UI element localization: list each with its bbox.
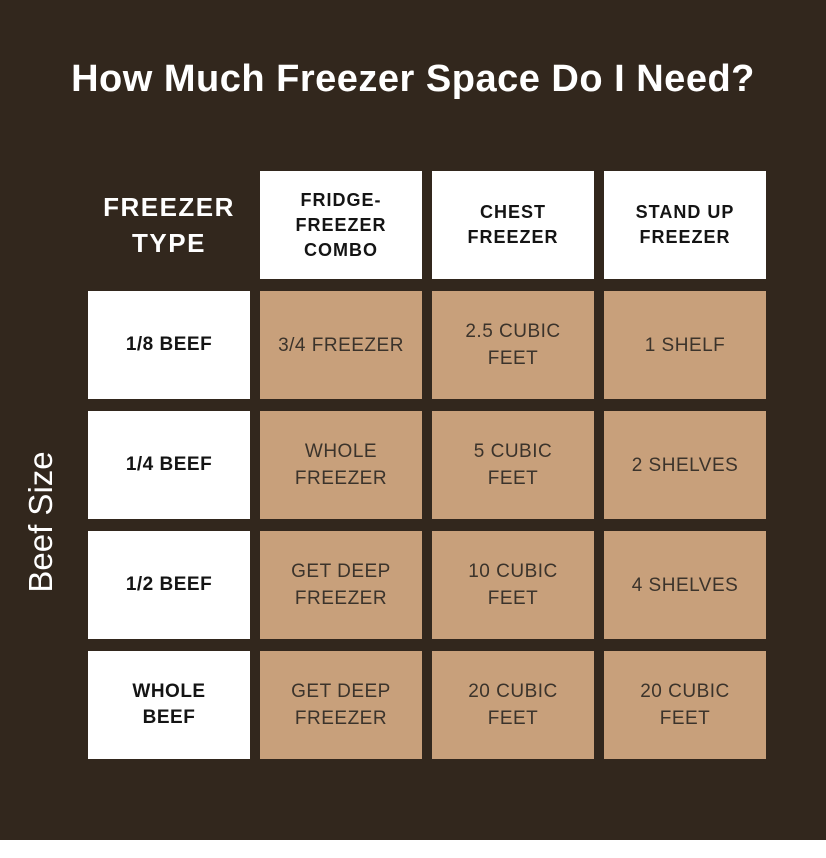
row-label-quarter-beef: 1/4 BEEF [88,411,250,519]
data-cell: GET DEEP FREEZER [260,531,422,639]
row-label-whole-beef: WHOLE BEEF [88,651,250,759]
row-axis-label: Beef Size [22,451,60,592]
data-cell: 2.5 CUBIC FEET [432,291,594,399]
data-cell: 4 SHELVES [604,531,766,639]
data-cell: 20 CUBIC FEET [432,651,594,759]
data-cell: GET DEEP FREEZER [260,651,422,759]
bottom-white-strip [0,840,826,858]
data-cell: 5 CUBIC FEET [432,411,594,519]
column-header-chest-freezer: CHEST FREEZER [432,171,594,279]
page-title: How Much Freezer Space Do I Need? [0,58,826,101]
data-cell: 2 SHELVES [604,411,766,519]
freezer-space-table: FREEZER TYPE FRIDGE- FREEZER COMBO CHEST… [88,171,766,759]
data-cell: 10 CUBIC FEET [432,531,594,639]
data-cell: 20 CUBIC FEET [604,651,766,759]
infographic-canvas: How Much Freezer Space Do I Need? Beef S… [0,0,826,858]
data-cell: 3/4 FREEZER [260,291,422,399]
row-label-half-beef: 1/2 BEEF [88,531,250,639]
column-header-fridge-freezer-combo: FRIDGE- FREEZER COMBO [260,171,422,279]
data-cell: WHOLE FREEZER [260,411,422,519]
row-label-eighth-beef: 1/8 BEEF [88,291,250,399]
data-cell: 1 SHELF [604,291,766,399]
corner-header-freezer-type: FREEZER TYPE [88,171,250,279]
column-header-stand-up-freezer: STAND UP FREEZER [604,171,766,279]
